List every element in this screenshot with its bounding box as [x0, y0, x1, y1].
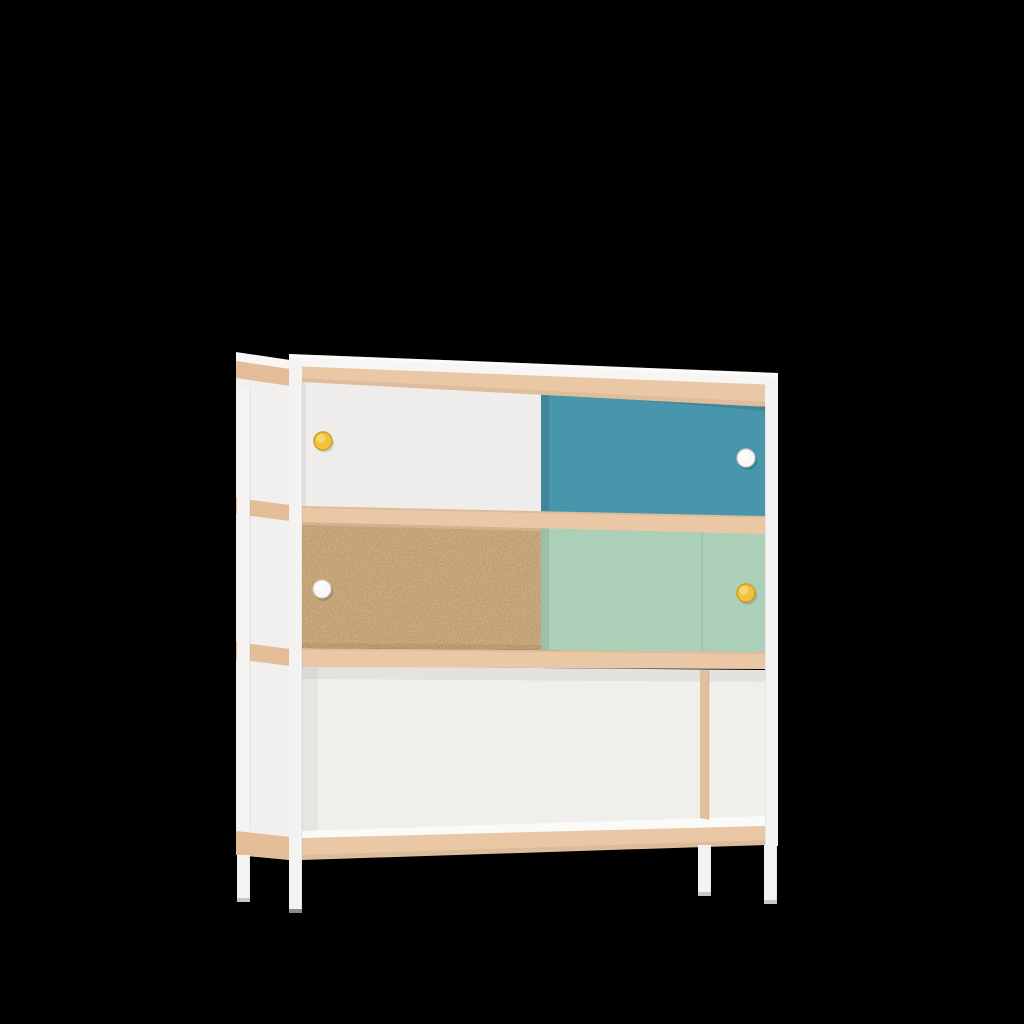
product-image-stage — [0, 0, 1024, 1024]
front-left-post — [289, 360, 302, 861]
leg-cap — [289, 909, 302, 913]
leg-cap — [764, 900, 777, 904]
compartment-divider — [700, 670, 709, 820]
leg — [764, 845, 777, 904]
back-left-post — [237, 386, 250, 832]
leg-back-left — [237, 855, 250, 902]
knob-highlight — [317, 434, 326, 443]
leg-cap — [237, 898, 250, 902]
leg — [237, 855, 250, 902]
leg-front-left — [289, 859, 302, 913]
door-middle-left-mdf — [302, 520, 541, 650]
leg-front-right — [764, 845, 777, 904]
leg — [289, 859, 302, 913]
knob-highlight — [316, 582, 325, 591]
open-compartment-back-panel — [302, 666, 765, 833]
door-top-left-white — [302, 380, 541, 512]
door-top-left-edge-shadow — [302, 380, 306, 509]
mint-door-left-overlap-shadow — [541, 526, 549, 650]
knob-highlight — [740, 451, 749, 460]
front-right-post — [765, 379, 778, 846]
leg-cap — [698, 892, 711, 896]
teal-door-left-overlap-shadow — [541, 390, 549, 512]
compartment-left-shadow — [302, 666, 318, 833]
door-middle-right-mint — [541, 526, 765, 654]
leg — [698, 845, 711, 896]
knob-highlight — [740, 586, 749, 595]
sideboard-render — [0, 0, 1024, 1024]
leg-back-right — [698, 845, 711, 896]
